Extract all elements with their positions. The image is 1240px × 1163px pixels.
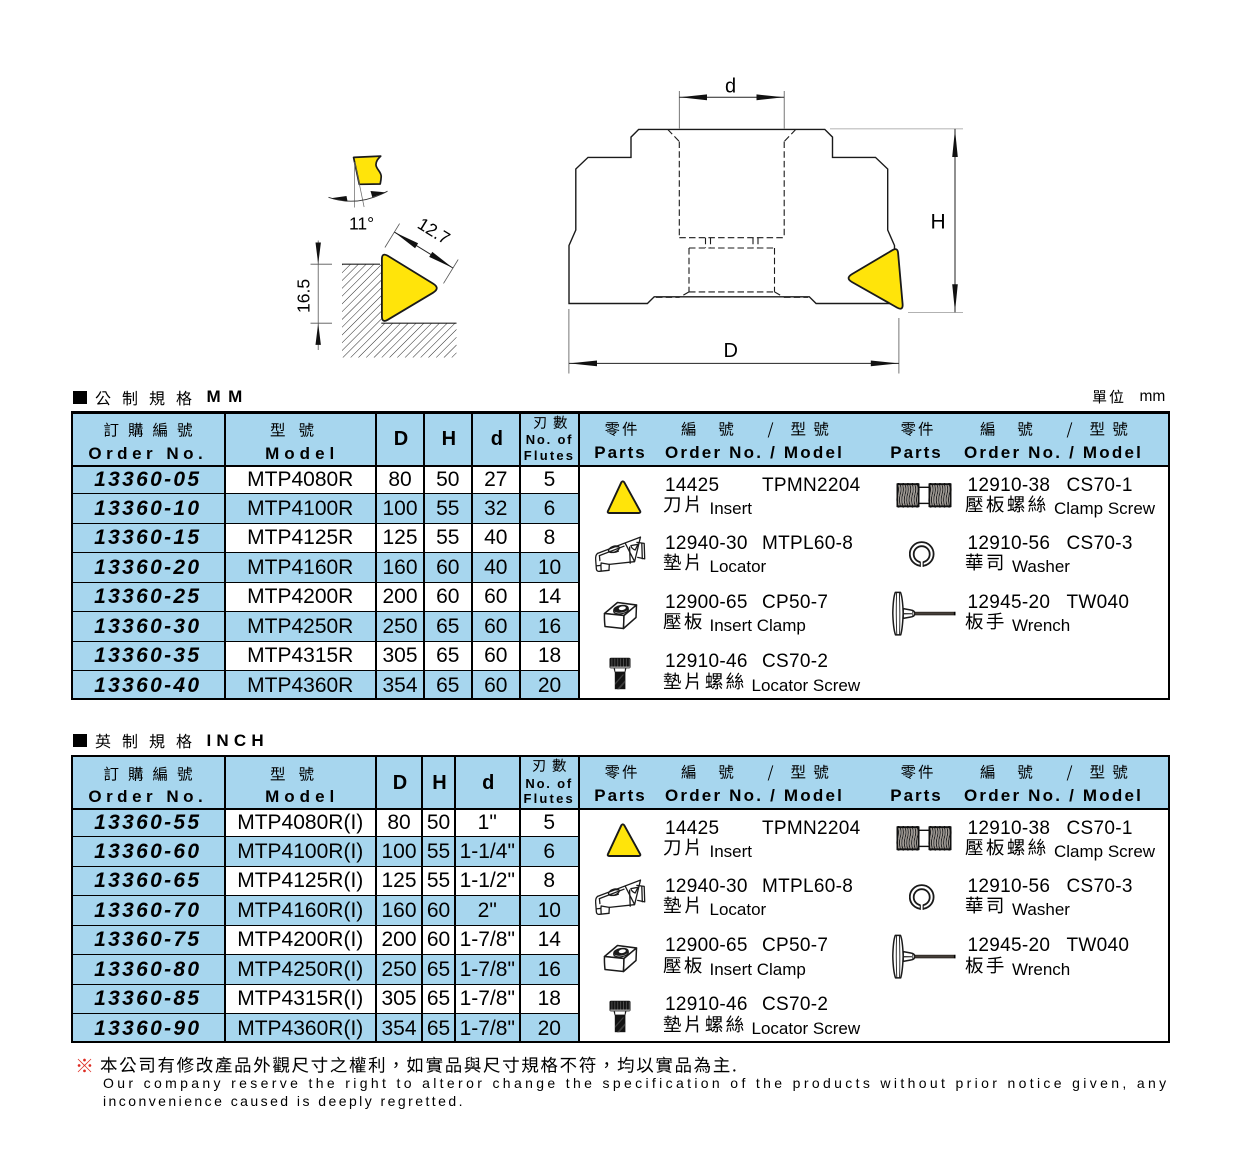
- svg-text:d: d: [725, 76, 736, 98]
- svg-text:12.7: 12.7: [414, 214, 453, 249]
- svg-text:11°: 11°: [349, 214, 374, 234]
- svg-text:H: H: [931, 211, 946, 234]
- svg-text:16.5: 16.5: [294, 279, 314, 313]
- svg-text:D: D: [724, 340, 738, 362]
